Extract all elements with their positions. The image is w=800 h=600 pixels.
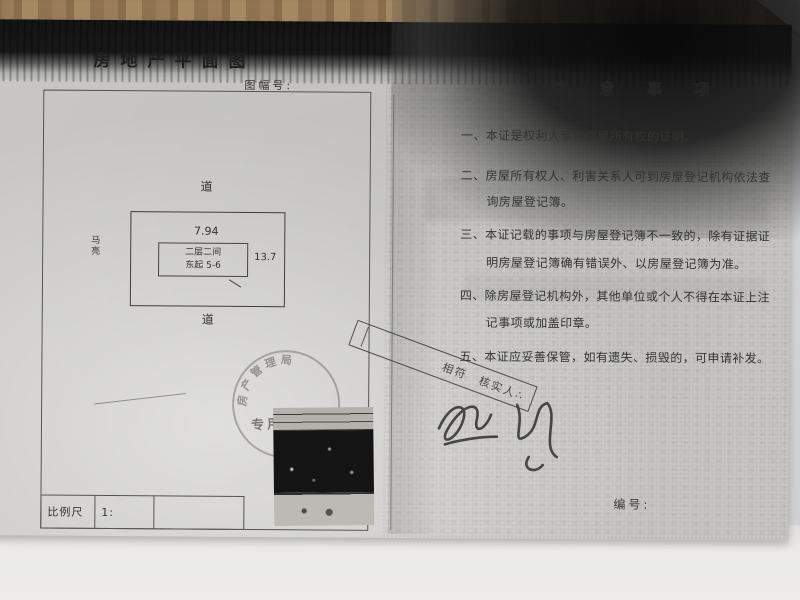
photo-upper-wall <box>273 407 373 431</box>
road-label-bottom: 道 <box>202 311 214 328</box>
notice-line-2b: 询房屋登记簿。 <box>486 193 573 211</box>
building-outline: 二层二间 东起 5-6 <box>158 242 248 277</box>
dimension-top: 7.94 <box>166 224 246 238</box>
notice-line-3: 三、本证记载的事项与房屋登记簿不一致的，除有证据证 <box>460 225 770 244</box>
notice-line-5: 五、本证应妥善保管，如有遗失、损毁的，可申请补发。 <box>459 347 769 366</box>
plan-page-title: 房地产平面图 <box>93 46 255 72</box>
photo-dark-area <box>273 430 374 493</box>
west-neighbor-label: 马亮 <box>88 235 101 257</box>
notice-title: 注 意 事 项 <box>551 75 723 100</box>
notice-line-2: 二、房屋所有权人、利害关系人可到房屋登记机构依法查 <box>461 166 771 185</box>
scale-value-cell: 1: <box>95 496 155 528</box>
notice-line-1: 一、本证是权利人享有房屋所有权的证明。 <box>461 126 697 145</box>
notice-line-4b: 记事项或加盖印章。 <box>486 314 598 332</box>
scale-empty-cell <box>155 496 244 529</box>
notice-line-4: 四、除房屋登记机构外，其他单位或个人不得在本证上注 <box>460 286 770 305</box>
handwritten-signature <box>425 370 576 486</box>
dimension-side: 13.7 <box>254 252 276 263</box>
scale-table: 比例尺 1: <box>40 495 244 530</box>
serial-number-label: 编号: <box>613 496 650 513</box>
house-photo <box>273 407 374 526</box>
building-label-line1: 二层二间 <box>185 247 221 260</box>
svg-text:房产管理局: 房产管理局 <box>230 352 301 408</box>
photo-lower-wall <box>274 492 374 526</box>
road-label-top: 道 <box>201 178 213 195</box>
building-label-line2: 东起 5-6 <box>185 260 221 273</box>
notice-line-3b: 明房屋登记簿确有错误外、以房屋登记簿为准。 <box>486 254 747 273</box>
certificate-page: 房地产平面图 图幅号: 道 7.94 二层二间 东起 5-6 13.7 道 马亮… <box>0 19 792 541</box>
stamp-arc-text: 房产管理局 <box>230 352 301 408</box>
photographed-certificate-scene: 房地产平面图 图幅号: 道 7.94 二层二间 东起 5-6 13.7 道 马亮… <box>0 0 800 600</box>
scale-label-cell: 比例尺 <box>41 496 95 528</box>
stamp-end-cap <box>355 325 369 347</box>
